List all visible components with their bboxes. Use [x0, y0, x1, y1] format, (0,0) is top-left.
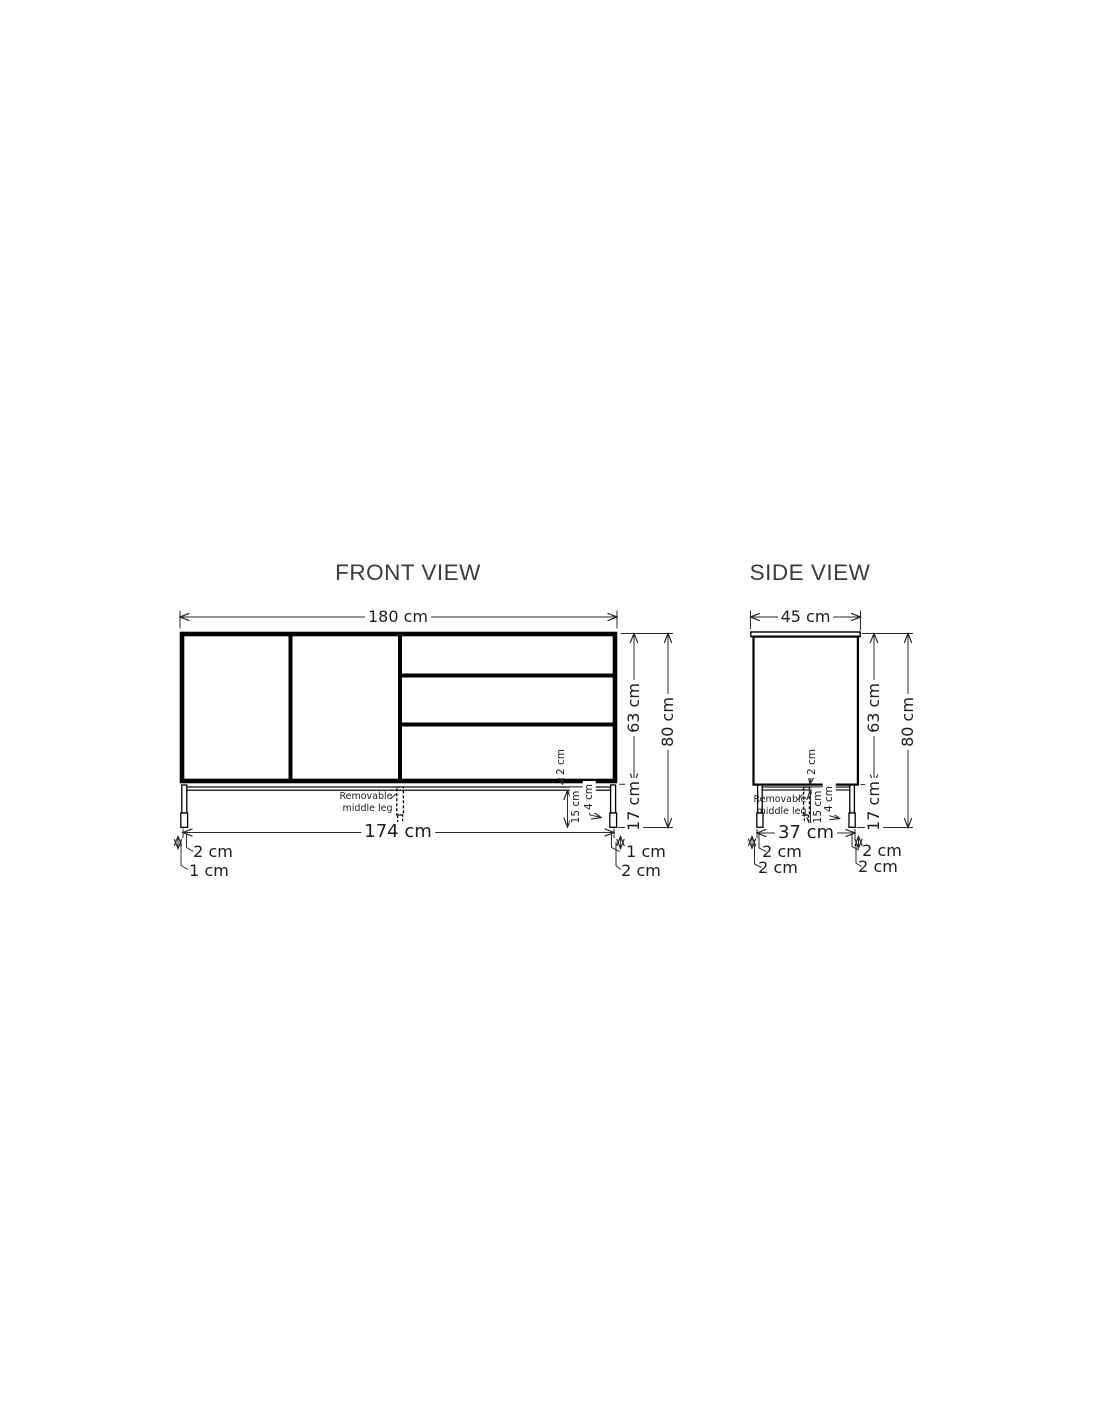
- side-depth-label: 45 cm: [778, 608, 834, 626]
- front-bottom-right-outer-label: 2 cm: [621, 863, 661, 879]
- side-middle-leg-note: Removable middle leg: [753, 794, 806, 818]
- front-foot-height-label: 4 cm: [582, 781, 595, 813]
- front-right-foot: [610, 813, 617, 827]
- front-middle-leg-note: Removable middle leg: [339, 791, 392, 815]
- front-removable-middle-leg: [397, 787, 404, 815]
- side-body-height-label: 63 cm: [865, 680, 883, 736]
- front-panel-thickness-label: 2 cm: [555, 746, 568, 778]
- front-total-height-label: 80 cm: [659, 694, 677, 750]
- side-bottom-right-outer-label: 2 cm: [858, 859, 898, 875]
- technical-drawing-page: FRONT VIEW 180 cm 174 cm 63 cm 80 cm 17 …: [0, 0, 1100, 1422]
- front-left-foot: [181, 813, 188, 827]
- front-width-label: 180 cm: [365, 608, 431, 626]
- front-leg-span-label: 174 cm: [361, 822, 435, 842]
- front-view-cabinet: [181, 634, 617, 827]
- front-right-leg: [611, 785, 616, 813]
- sideboard-drawing: [0, 0, 1100, 1422]
- side-foot-height-label: 4 cm: [822, 783, 835, 815]
- front-bottom-left-inner-label: 1 cm: [189, 863, 229, 879]
- side-back-foot: [849, 813, 855, 827]
- side-view-title: SIDE VIEW: [750, 562, 871, 585]
- side-back-leg: [850, 785, 855, 813]
- side-bottom-left-inner-label: 2 cm: [758, 860, 798, 876]
- front-leg-height-label: 17 cm: [625, 778, 643, 834]
- side-leg-height-label: 17 cm: [865, 778, 883, 834]
- front-left-leg: [182, 785, 187, 813]
- front-bottom-right-inner-label: 1 cm: [626, 844, 666, 860]
- side-leg-span-label: 37 cm: [775, 823, 837, 843]
- front-leg-below-frame-label: 15 cm: [570, 788, 583, 827]
- side-total-height-label: 80 cm: [899, 694, 917, 750]
- front-body-height-label: 63 cm: [625, 680, 643, 736]
- front-view-title: FRONT VIEW: [335, 562, 481, 585]
- side-panel-thickness-label: 2 cm: [806, 746, 819, 778]
- front-bottom-left-outer-label: 2 cm: [193, 844, 233, 860]
